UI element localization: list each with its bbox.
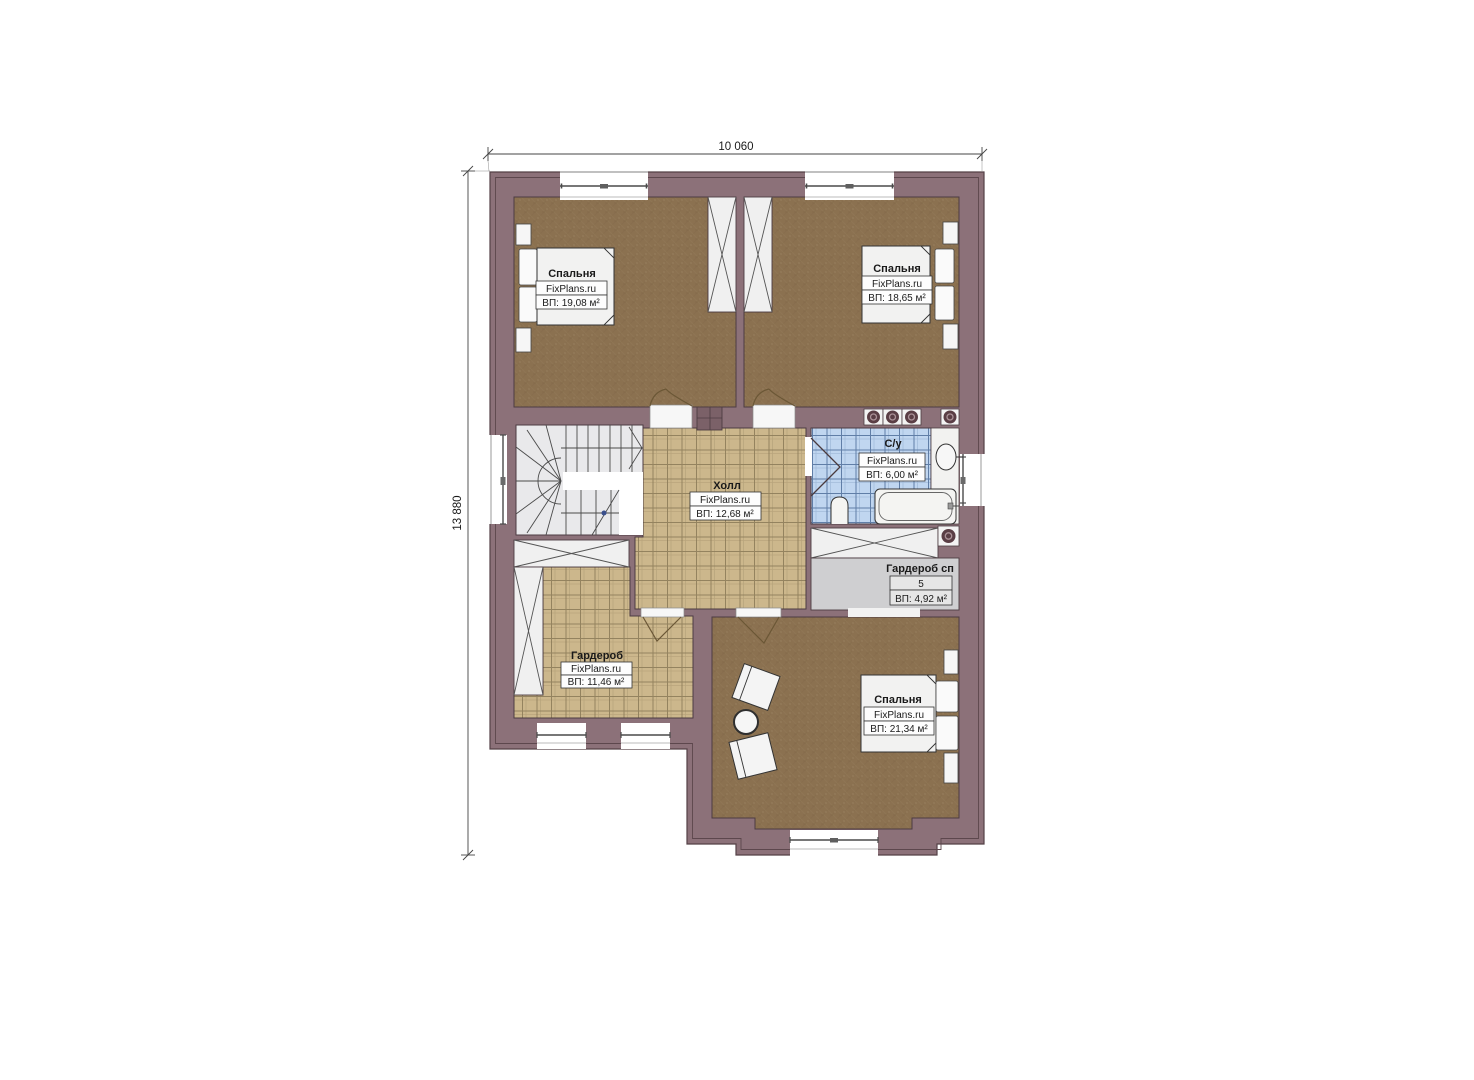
svg-text:Спальня: Спальня: [548, 268, 596, 280]
svg-text:ВП: 19,08 м²: ВП: 19,08 м²: [542, 298, 600, 309]
svg-text:FixPlans.ru: FixPlans.ru: [867, 456, 917, 467]
svg-text:Спальня: Спальня: [873, 263, 921, 275]
svg-text:FixPlans.ru: FixPlans.ru: [874, 710, 924, 721]
svg-text:ВП: 4,92 м²: ВП: 4,92 м²: [895, 594, 948, 605]
svg-text:Гардероб: Гардероб: [571, 650, 623, 662]
svg-text:ВП: 18,65 м²: ВП: 18,65 м²: [868, 293, 926, 304]
svg-text:Холл: Холл: [713, 480, 741, 492]
svg-text:ВП: 6,00 м²: ВП: 6,00 м²: [866, 470, 919, 481]
svg-text:10 060: 10 060: [718, 141, 753, 153]
svg-text:FixPlans.ru: FixPlans.ru: [571, 664, 621, 675]
svg-text:Спальня: Спальня: [874, 694, 922, 706]
svg-text:FixPlans.ru: FixPlans.ru: [872, 279, 922, 290]
svg-text:FixPlans.ru: FixPlans.ru: [700, 495, 750, 506]
svg-text:ВП: 21,34 м²: ВП: 21,34 м²: [870, 724, 928, 735]
svg-text:ВП: 11,46 м²: ВП: 11,46 м²: [568, 677, 625, 688]
svg-text:13 880: 13 880: [452, 495, 464, 530]
svg-text:ВП: 12,68 м²: ВП: 12,68 м²: [696, 509, 754, 520]
svg-text:5: 5: [918, 579, 924, 590]
svg-text:С/у: С/у: [884, 438, 902, 450]
svg-text:Гардероб сп: Гардероб сп: [886, 563, 954, 575]
svg-text:FixPlans.ru: FixPlans.ru: [546, 284, 596, 295]
